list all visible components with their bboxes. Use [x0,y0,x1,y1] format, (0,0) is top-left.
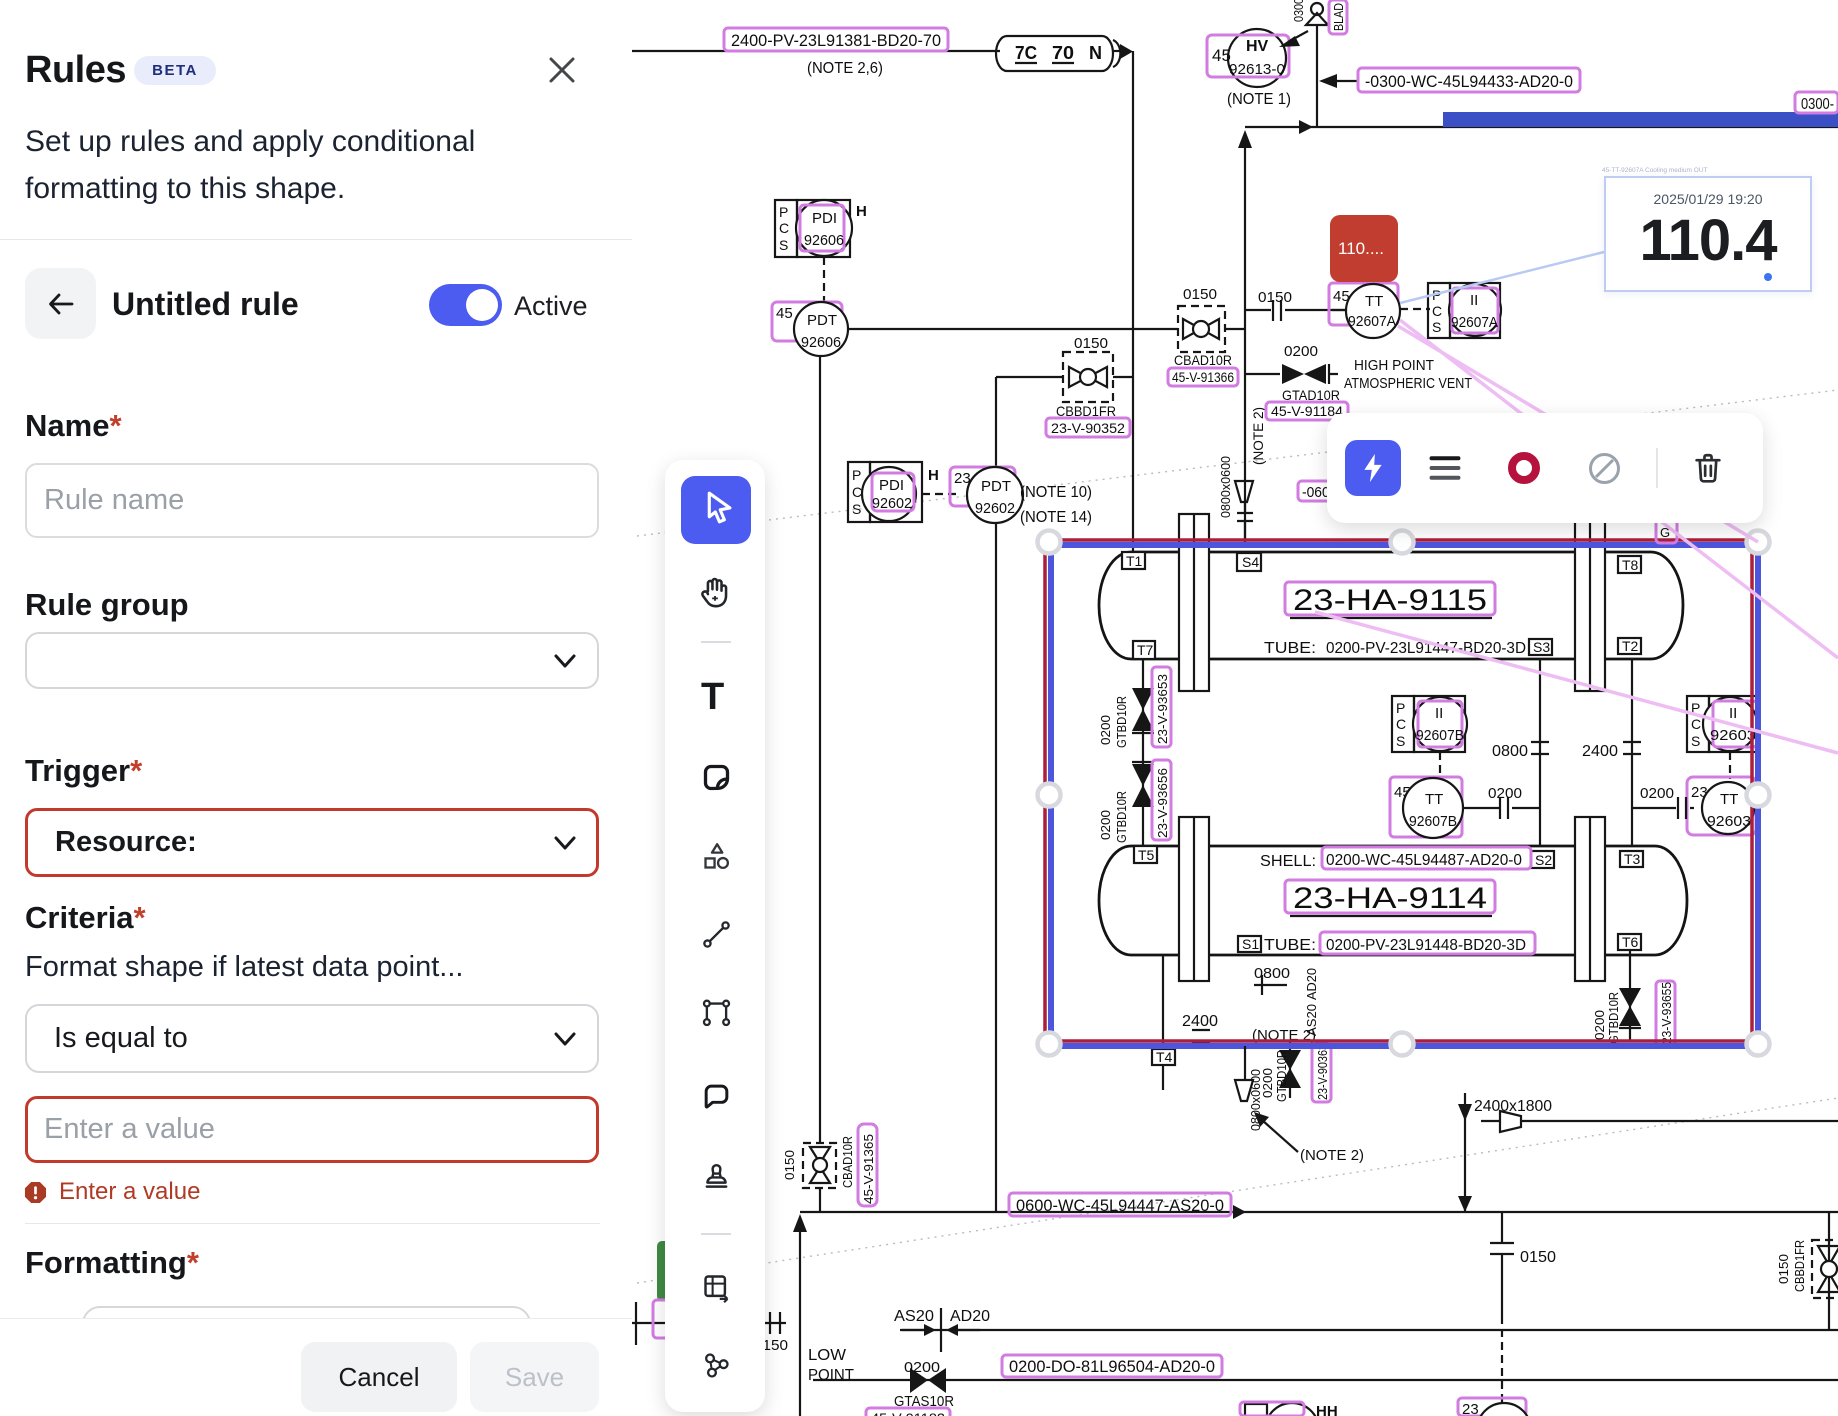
svg-text:AS20: AS20 [894,1308,934,1325]
svg-text:H: H [856,203,867,220]
svg-text:0150: 0150 [1074,335,1108,352]
svg-text:23-V-90352: 23-V-90352 [1051,420,1125,436]
svg-text:0150: 0150 [1776,1254,1791,1284]
svg-text:P: P [1396,700,1405,716]
svg-text:H: H [928,467,939,484]
svg-text:GTBD10R: GTBD10R [1114,696,1129,748]
svg-text:S2: S2 [1535,852,1552,868]
svg-text:0300-: 0300- [1801,96,1834,113]
svg-text:(NOTE 2): (NOTE 2) [1250,407,1266,465]
svg-text:T5: T5 [1138,847,1155,863]
svg-text:0150: 0150 [782,1150,797,1180]
svg-text:92602: 92602 [872,495,912,512]
svg-text:2400x1800: 2400x1800 [1474,1098,1552,1115]
svg-text:(NOTE 2,6): (NOTE 2,6) [807,60,883,77]
svg-text:0200: 0200 [1098,715,1113,745]
svg-text:-0300-WC-45L94433-AD20-0: -0300-WC-45L94433-AD20-0 [1365,72,1573,91]
svg-text:C: C [1432,303,1442,319]
svg-text:T1: T1 [1126,553,1143,569]
svg-text:TT: TT [1720,791,1738,808]
svg-text:PDT: PDT [981,478,1011,495]
svg-text:HH: HH [1316,1403,1338,1416]
svg-text:AD20: AD20 [950,1308,990,1325]
svg-text:0200: 0200 [1098,810,1113,840]
svg-text:AS20: AS20 [1304,1004,1319,1036]
svg-text:TUBE:: TUBE: [1264,640,1316,657]
svg-text:0200: 0200 [1592,1010,1607,1040]
svg-text:II: II [1729,705,1737,722]
svg-text:23-V-93653: 23-V-93653 [1155,674,1170,744]
svg-text:92607B: 92607B [1409,813,1457,830]
svg-text:C: C [1691,716,1701,732]
svg-text:GTBD10R: GTBD10R [1606,992,1621,1044]
svg-text:0200: 0200 [1640,785,1674,802]
svg-text:S: S [1432,319,1441,335]
svg-text:TUBE:: TUBE: [1264,937,1316,954]
svg-text:92606: 92606 [801,334,841,351]
svg-text:2400: 2400 [1182,1013,1218,1030]
svg-text:0150: 0150 [1258,289,1292,306]
svg-text:T3: T3 [1624,851,1641,867]
svg-text:S3: S3 [1533,639,1550,655]
svg-text:45-V-91366: 45-V-91366 [1172,369,1234,385]
svg-text:POINT: POINT [808,1367,854,1384]
svg-text:T8: T8 [1622,557,1639,573]
svg-text:(NOTE 2): (NOTE 2) [1300,1147,1364,1164]
svg-text:S: S [779,237,788,253]
svg-text:CBAD10R: CBAD10R [840,1136,855,1188]
svg-text:2400: 2400 [1582,743,1618,760]
svg-text:T6: T6 [1622,934,1639,950]
svg-text:S: S [1396,733,1405,749]
svg-text:45: 45 [776,305,793,322]
svg-text:GTBD10R: GTBD10R [1114,791,1129,843]
svg-text:23-V-93655: 23-V-93655 [1659,982,1674,1044]
svg-text:92603: 92603 [1707,813,1751,830]
svg-text:23-V-93656: 23-V-93656 [1155,768,1170,838]
svg-text:0200: 0200 [1488,785,1522,802]
svg-text:23: 23 [1462,1401,1479,1416]
svg-text:92607A: 92607A [1451,314,1498,331]
svg-text:II: II [1470,292,1478,309]
svg-text:N: N [1089,43,1102,63]
svg-text:T2: T2 [1622,638,1639,654]
svg-text:II: II [1435,705,1443,722]
svg-text:(NOTE 10): (NOTE 10) [1020,484,1092,501]
svg-text:0600-WC-45L94447-AS20-0: 0600-WC-45L94447-AS20-0 [1016,1196,1224,1215]
svg-text:CBBD1FR: CBBD1FR [1792,1240,1807,1292]
svg-text:T4: T4 [1156,1049,1173,1065]
svg-text:0150: 0150 [1520,1249,1556,1266]
svg-text:CBAD10R: CBAD10R [1174,352,1232,368]
svg-text:ATMOSPHERIC VENT: ATMOSPHERIC VENT [1344,375,1472,392]
svg-text:0200-PV-23L91448-BD20-3D: 0200-PV-23L91448-BD20-3D [1326,937,1526,954]
svg-text:0800: 0800 [1254,965,1290,982]
svg-text:PDI: PDI [879,477,904,494]
svg-text:(NOTE 1): (NOTE 1) [1227,91,1291,108]
svg-text:HV: HV [1246,38,1269,55]
svg-text:7C: 7C [1015,43,1037,63]
svg-text:0200: 0200 [1284,343,1318,360]
svg-text:0200-WC-45L94487-AD20-0: 0200-WC-45L94487-AD20-0 [1326,852,1522,869]
svg-text:92606: 92606 [804,232,844,249]
svg-text:LOW: LOW [808,1347,847,1364]
svg-text:(NOTE 14): (NOTE 14) [1020,509,1092,526]
svg-text:C: C [1396,716,1406,732]
svg-text:23-HA-9114: 23-HA-9114 [1293,882,1487,915]
svg-text:92607B: 92607B [1416,727,1464,744]
svg-text:92607A: 92607A [1348,313,1396,330]
svg-text:P: P [779,204,788,220]
svg-text:S: S [1691,733,1700,749]
svg-text:0300: 0300 [1291,0,1306,22]
svg-text:P: P [852,467,861,483]
svg-text:45-V-91182: 45-V-91182 [871,1410,945,1416]
svg-text:23-V-90363: 23-V-90363 [1315,1044,1330,1100]
svg-text:0800: 0800 [1492,743,1528,760]
svg-text:0800x0600: 0800x0600 [1218,456,1233,518]
svg-text:PDI: PDI [812,210,837,227]
svg-text:0150: 0150 [1183,286,1217,303]
svg-text:70: 70 [1052,43,1074,63]
svg-text:T7: T7 [1137,642,1154,658]
svg-text:S1: S1 [1242,936,1259,952]
svg-text:S: S [852,501,861,517]
svg-text:TT: TT [1365,293,1383,310]
svg-text:C: C [779,220,789,236]
svg-text:PDT: PDT [807,312,837,329]
svg-text:SHELL:: SHELL: [1260,853,1316,870]
svg-text:HIGH POINT: HIGH POINT [1354,357,1434,374]
svg-text:92613-0: 92613-0 [1229,61,1285,78]
svg-text:S4: S4 [1242,554,1259,570]
svg-text:GTBD10R: GTBD10R [1274,1050,1289,1102]
svg-text:2400-PV-23L91381-BD20-70: 2400-PV-23L91381-BD20-70 [731,31,941,50]
svg-text:0200: 0200 [904,1359,940,1376]
svg-text:45-V-91365: 45-V-91365 [861,1134,876,1204]
svg-text:BLAD: BLAD [1331,3,1346,31]
svg-text:C: C [852,484,862,500]
svg-text:AD20: AD20 [1304,968,1319,1000]
svg-text:TT: TT [1425,791,1443,808]
svg-text:92602: 92602 [975,500,1015,517]
svg-text:23-HA-9115: 23-HA-9115 [1293,584,1487,617]
svg-text:0200-DO-81L96504-AD20-0: 0200-DO-81L96504-AD20-0 [1009,1357,1215,1376]
